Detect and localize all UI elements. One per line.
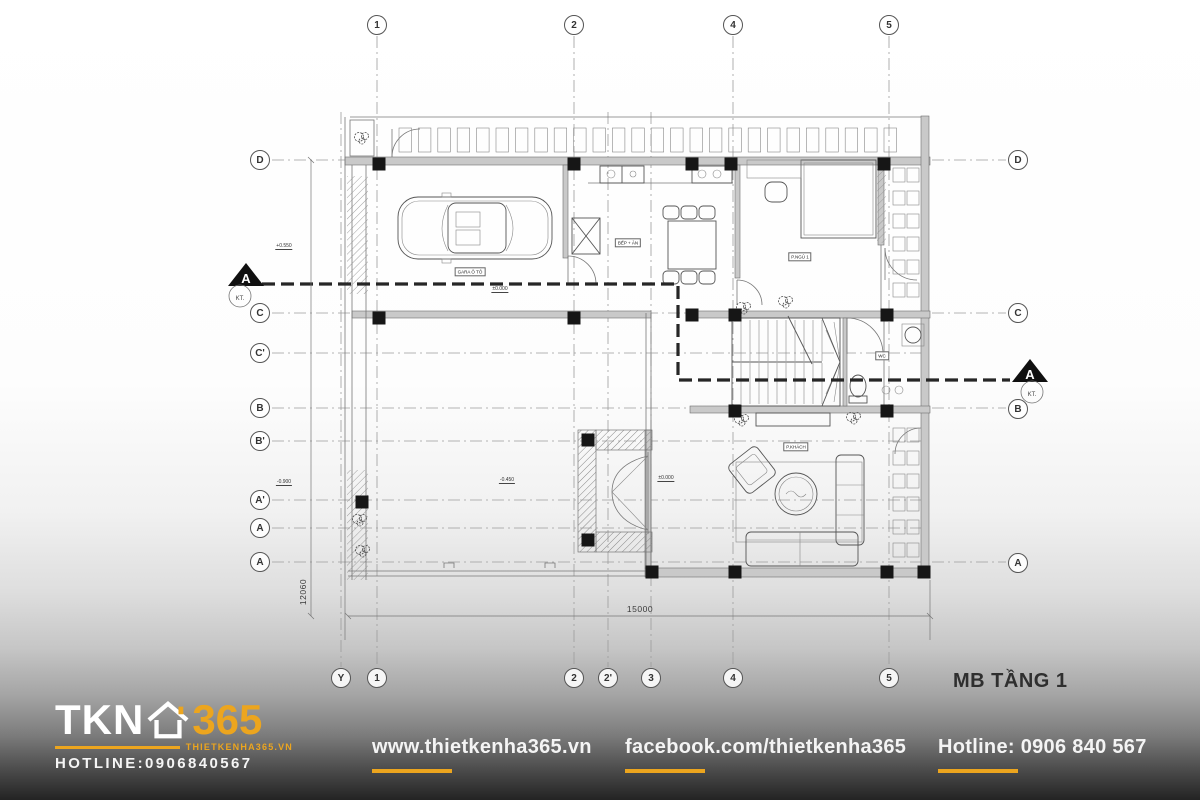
grid-bubble: C xyxy=(250,303,270,323)
footer-link-facebook-label: facebook.com/thietkenha365 xyxy=(625,736,906,758)
grid-bubble: D xyxy=(250,150,270,170)
level-marker: +0.550 xyxy=(275,243,292,250)
plants xyxy=(353,133,861,558)
brand-logo[interactable]: TKN 365 THIETKENHA365.VN HOTLINE:0906840… xyxy=(55,698,293,772)
level-marker: ±0.000 xyxy=(657,475,674,482)
grid-bubble: C' xyxy=(250,343,270,363)
room-label: P.NGỦ 1 xyxy=(788,252,811,261)
grid-bubble: 2 xyxy=(564,15,584,35)
grid-bubble: B xyxy=(250,398,270,418)
footer-link-underline xyxy=(625,769,705,773)
grid-bubble: 1 xyxy=(367,668,387,688)
desk-and-chair xyxy=(747,160,801,202)
grid-bubble: B xyxy=(1008,399,1028,419)
grid-bubble: C xyxy=(1008,303,1028,323)
footer-link-website[interactable]: www.thietkenha365.vn xyxy=(372,736,592,773)
logo-house-icon xyxy=(147,700,189,740)
grid-bubble: A xyxy=(250,518,270,538)
room-label: P.KHÁCH xyxy=(783,442,808,451)
plan-title: MB TẦNG 1 xyxy=(953,670,1068,693)
section-letter-left: A xyxy=(241,271,251,286)
footer-link-website-label: www.thietkenha365.vn xyxy=(372,736,592,758)
dimension-total-width: 15000 xyxy=(627,604,653,614)
walls xyxy=(345,116,930,578)
room-label: WC xyxy=(875,351,889,360)
room-label: GARA Ô TÔ xyxy=(455,267,486,276)
grid-bubble: B' xyxy=(250,431,270,451)
footer-link-underline xyxy=(372,769,452,773)
grid-bubble: 2 xyxy=(564,668,584,688)
logo-tkn-text: TKN xyxy=(55,702,144,738)
grid-bubble: D xyxy=(1008,150,1028,170)
living-room-furniture xyxy=(727,413,864,566)
footer-link-hotline[interactable]: Hotline: 0906 840 567 xyxy=(938,736,1147,773)
logo-365-text: 365 xyxy=(192,702,262,738)
room-label: BẾP + ĂN xyxy=(615,238,641,247)
car-icon xyxy=(398,193,552,263)
grid-bubble: A xyxy=(250,552,270,572)
level-marker: -0.450 xyxy=(499,477,515,484)
planters xyxy=(347,176,652,580)
section-sub-right: KT. xyxy=(1028,392,1037,398)
level-marker: -0.900 xyxy=(276,479,292,486)
grid-bubble: 3 xyxy=(641,668,661,688)
grid-bubble: A' xyxy=(250,490,270,510)
grid-bubble: 4 xyxy=(723,668,743,688)
logo-hotline-text: HOTLINE:0906840567 xyxy=(55,755,293,772)
logo-row: TKN 365 xyxy=(55,698,293,738)
bathroom-fixtures xyxy=(849,324,924,403)
grid-bubble: 5 xyxy=(879,15,899,35)
grid-bubble: 4 xyxy=(723,15,743,35)
stairs xyxy=(732,316,840,406)
louver-slats xyxy=(399,128,919,557)
logo-site-row: THIETKENHA365.VN xyxy=(55,742,293,752)
section-letter-right: A xyxy=(1025,367,1035,382)
page: { "page": { "title": "MB TẦNG 1" }, "col… xyxy=(0,0,1200,800)
grid-bubble: Y xyxy=(331,668,351,688)
dining-table xyxy=(663,206,716,284)
footer-link-underline xyxy=(938,769,1018,773)
grid-bubble: 5 xyxy=(879,668,899,688)
kitchen-counter xyxy=(600,166,732,183)
level-marker: ±0.000 xyxy=(491,286,508,293)
grid-bubble: 1 xyxy=(367,15,387,35)
footer-link-hotline-label: Hotline: 0906 840 567 xyxy=(938,736,1147,758)
logo-accent-bar xyxy=(55,746,180,749)
footer-link-facebook[interactable]: facebook.com/thietkenha365 xyxy=(625,736,906,773)
grid-bubble: 2' xyxy=(598,668,618,688)
shaft xyxy=(572,218,600,254)
logo-website-text: THIETKENHA365.VN xyxy=(186,742,293,752)
grid-bubble: A xyxy=(1008,553,1028,573)
bed xyxy=(801,160,876,238)
section-sub-left: KT. xyxy=(236,296,245,302)
doors xyxy=(392,129,921,534)
dimension-total-height: 12060 xyxy=(298,579,308,605)
